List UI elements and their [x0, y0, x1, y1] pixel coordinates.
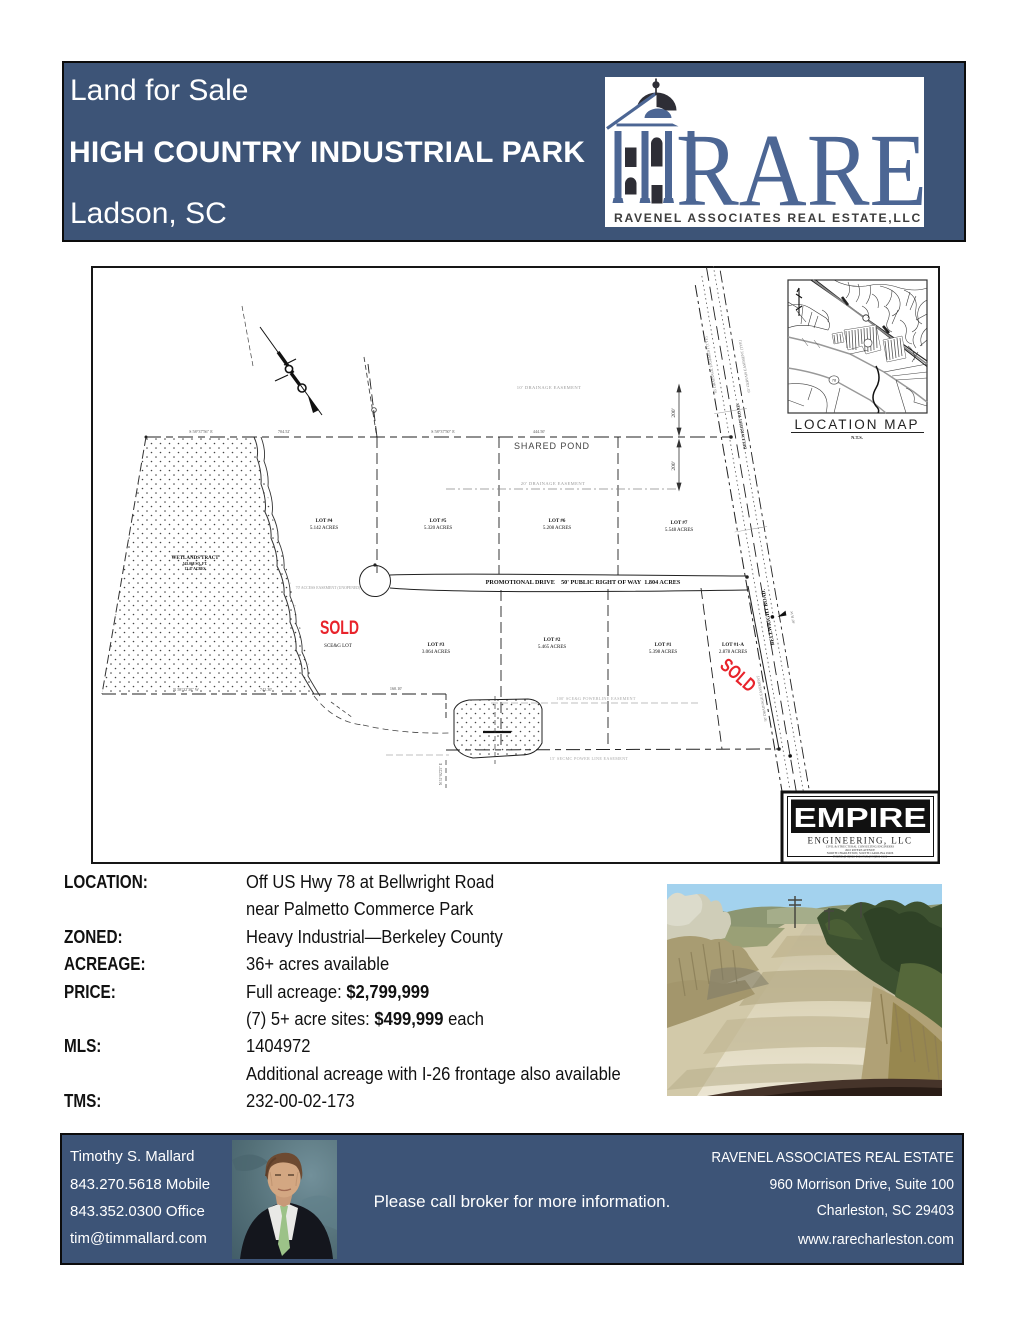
svg-text:5.465 ACRES: 5.465 ACRES [538, 645, 567, 650]
svg-text:N.T.S.: N.T.S. [851, 435, 863, 440]
svg-text:3.064 ACRES: 3.064 ACRES [422, 650, 451, 655]
svg-text:S 58°37'56" E: S 58°37'56" E [189, 429, 213, 434]
svg-text:704.52': 704.52' [278, 429, 291, 434]
svg-text:200': 200' [671, 408, 677, 417]
svg-text:78: 78 [832, 379, 836, 383]
svg-text:5.398 ACRES: 5.398 ACRES [649, 650, 678, 655]
svg-text:LOT #1-A: LOT #1-A [722, 643, 744, 648]
svg-text:5.548 ACRES: 5.548 ACRES [665, 528, 694, 533]
svg-text:N 31°02'25" E: N 31°02'25" E [439, 762, 443, 785]
svg-text:LOT #5: LOT #5 [430, 519, 447, 524]
svg-text:10' DRAINAGE EASEMENT: 10' DRAINAGE EASEMENT [517, 385, 582, 390]
svg-text:543.068 SQ. FT.: 543.068 SQ. FT. [183, 562, 207, 566]
svg-text:SCE&G LOT: SCE&G LOT [324, 644, 352, 649]
svg-text:70' ACCESS EASEMENT (UNOPENED): 70' ACCESS EASEMENT (UNOPENED) [296, 586, 361, 590]
svg-text:PHONE:(843)566-0161 FAX:(843: PHONE:(843)566-0161 FAX:(843)566-0166 [833, 854, 888, 858]
svg-text:5.208 ACRES: 5.208 ACRES [543, 526, 572, 531]
svg-text:LOT #4: LOT #4 [316, 519, 333, 524]
svg-text:PROMOTIONAL DRIVE 50' PUBLI: PROMOTIONAL DRIVE 50' PUBLIC RIGHT OF WA… [486, 579, 681, 586]
svg-text:N 58°32'30" W: N 58°32'30" W [173, 687, 199, 692]
svg-text:160.10': 160.10' [390, 686, 403, 691]
svg-text:2.878 ACRES: 2.878 ACRES [719, 650, 748, 655]
svg-text:SOLD: SOLD [320, 618, 359, 639]
svg-text:12.47 ACRES: 12.47 ACRES [185, 567, 206, 571]
svg-text:LOT #7: LOT #7 [671, 521, 688, 526]
svg-text:RARE: RARE [676, 113, 924, 227]
svg-text:742.30': 742.30' [260, 687, 273, 692]
svg-text:15' SECMC POWER LINE EASEMENT: 15' SECMC POWER LINE EASEMENT [550, 756, 629, 761]
svg-text:LOCATION MAP: LOCATION MAP [794, 417, 919, 432]
svg-text:LOT #1: LOT #1 [655, 643, 672, 648]
svg-text:LOT #2: LOT #2 [544, 638, 561, 643]
svg-text:RAVENEL ASSOCIATES REAL ESTATE: RAVENEL ASSOCIATES REAL ESTATE,LLC [614, 213, 922, 225]
svg-text:200': 200' [671, 461, 677, 470]
svg-text:5.320 ACRES: 5.320 ACRES [424, 526, 453, 531]
svg-text:S 58°37'50" E: S 58°37'50" E [431, 429, 455, 434]
svg-text:100' SCE&G POWERLINE EASEMENT: 100' SCE&G POWERLINE EASEMENT [556, 696, 636, 701]
svg-text:20' DRAINAGE EASEMENT: 20' DRAINAGE EASEMENT [521, 481, 586, 486]
svg-text:444.50': 444.50' [533, 429, 546, 434]
svg-text:LOT #3: LOT #3 [428, 643, 445, 648]
svg-text:LOT #6: LOT #6 [549, 519, 566, 524]
svg-text:SHARED POND: SHARED POND [514, 441, 590, 451]
svg-text:WETLANDS TRACT: WETLANDS TRACT [171, 556, 219, 561]
svg-text:EMPIRE: EMPIRE [794, 802, 927, 833]
svg-text:5.142 ACRES: 5.142 ACRES [310, 526, 339, 531]
